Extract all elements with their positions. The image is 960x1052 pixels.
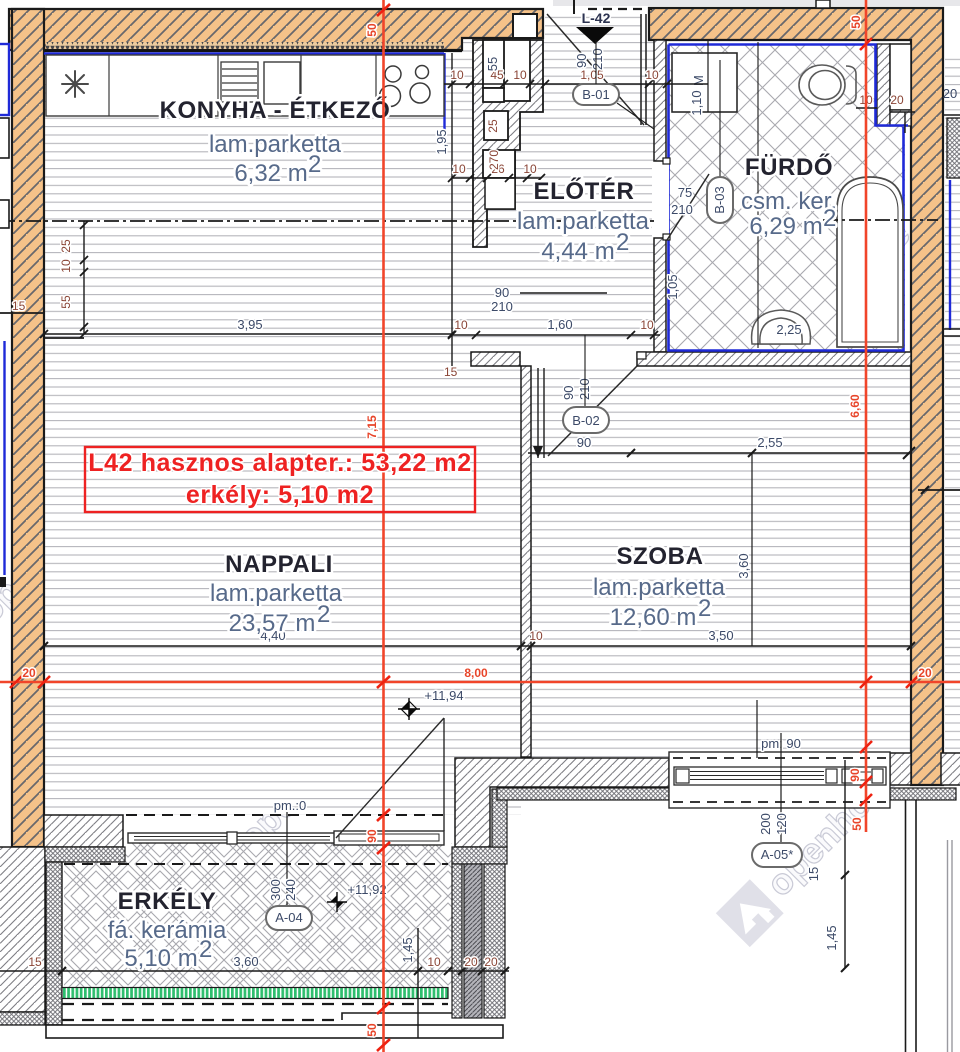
svg-text:10: 10 — [645, 68, 659, 82]
svg-text:NAPPALI: NAPPALI — [225, 551, 333, 578]
svg-text:L-42: L-42 — [582, 10, 611, 26]
svg-text:15: 15 — [12, 299, 26, 313]
svg-text:90: 90 — [848, 768, 862, 782]
svg-text:25: 25 — [486, 119, 500, 133]
svg-text:15: 15 — [28, 955, 42, 969]
svg-text:3,60: 3,60 — [233, 954, 258, 969]
svg-text:240: 240 — [283, 879, 298, 901]
svg-text:KONYHA - ÉTKEZŐ: KONYHA - ÉTKEZŐ — [160, 96, 391, 124]
svg-text:B-01: B-01 — [582, 87, 609, 102]
svg-text:A-04: A-04 — [275, 910, 302, 925]
svg-text:270: 270 — [487, 150, 501, 170]
svg-text:90: 90 — [365, 829, 379, 843]
svg-text:50: 50 — [849, 15, 863, 29]
svg-text:15: 15 — [806, 867, 821, 881]
svg-text:10: 10 — [640, 318, 654, 332]
svg-text:120: 120 — [774, 813, 789, 835]
svg-text:2: 2 — [823, 205, 836, 232]
svg-text:+11,94: +11,94 — [424, 688, 463, 703]
svg-text:55: 55 — [59, 295, 73, 309]
svg-text:1,95: 1,95 — [434, 129, 449, 154]
svg-text:1,45: 1,45 — [824, 925, 839, 950]
svg-text:4,44 m: 4,44 m — [541, 238, 614, 265]
svg-text:erkély: 5,10 m2: erkély: 5,10 m2 — [186, 481, 374, 509]
svg-text:L42 hasznos alapter.: 53,22 m2: L42 hasznos alapter.: 53,22 m2 — [88, 449, 471, 477]
svg-text:8,00: 8,00 — [464, 666, 488, 680]
svg-text:1,60: 1,60 — [547, 317, 572, 332]
svg-text:10: 10 — [452, 162, 466, 176]
svg-text:200: 200 — [758, 813, 773, 835]
svg-text:2: 2 — [317, 601, 330, 628]
svg-text:2: 2 — [698, 595, 711, 622]
svg-text:20: 20 — [943, 86, 957, 101]
svg-text:A-05*: A-05* — [761, 847, 794, 862]
svg-text:1,10: 1,10 — [689, 90, 704, 115]
svg-text:50: 50 — [850, 817, 864, 831]
svg-text:210: 210 — [491, 299, 513, 314]
svg-text:2: 2 — [308, 151, 321, 178]
svg-text:6,29 m: 6,29 m — [749, 213, 822, 240]
svg-text:10: 10 — [529, 629, 543, 643]
svg-text:B-03: B-03 — [712, 186, 727, 213]
svg-text:+11,92: +11,92 — [347, 882, 386, 897]
svg-text:6,32 m: 6,32 m — [234, 160, 307, 187]
svg-text:3,50: 3,50 — [708, 628, 733, 643]
svg-text:300: 300 — [268, 879, 283, 901]
svg-text:B-02: B-02 — [572, 413, 599, 428]
svg-text:FÜRDŐ: FÜRDŐ — [745, 153, 833, 181]
svg-text:50: 50 — [365, 1023, 379, 1037]
svg-text:90: 90 — [574, 54, 589, 68]
svg-text:2: 2 — [199, 936, 212, 963]
svg-text:75: 75 — [678, 185, 692, 200]
svg-text:210: 210 — [590, 48, 605, 70]
svg-text:6,60: 6,60 — [848, 394, 862, 418]
svg-text:20: 20 — [464, 955, 478, 969]
svg-text:10: 10 — [513, 68, 527, 82]
svg-text:90: 90 — [577, 435, 591, 450]
svg-text:7,15: 7,15 — [365, 415, 379, 439]
svg-text:55: 55 — [485, 57, 500, 71]
svg-text:5,10 m: 5,10 m — [124, 945, 197, 972]
svg-text:ERKÉLY: ERKÉLY — [118, 887, 217, 915]
svg-text:20: 20 — [484, 955, 498, 969]
svg-text:10: 10 — [59, 259, 73, 273]
svg-text:2,55: 2,55 — [757, 435, 782, 450]
svg-text:25: 25 — [59, 239, 73, 253]
svg-text:20: 20 — [890, 93, 904, 107]
svg-text:lam.parketta: lam.parketta — [209, 131, 342, 158]
svg-text:1,45: 1,45 — [400, 937, 415, 962]
svg-text:ELŐTÉR: ELŐTÉR — [534, 177, 635, 205]
svg-text:20: 20 — [22, 666, 36, 680]
svg-text:2,25: 2,25 — [776, 322, 801, 337]
svg-text:2: 2 — [616, 229, 629, 256]
svg-text:3,60: 3,60 — [736, 553, 751, 578]
svg-text:50: 50 — [365, 23, 379, 37]
svg-text:1,05: 1,05 — [665, 274, 680, 299]
svg-text:SZOBA: SZOBA — [617, 543, 704, 570]
svg-text:10: 10 — [454, 318, 468, 332]
svg-text:pm.:0: pm.:0 — [274, 798, 307, 813]
svg-text:90: 90 — [495, 285, 509, 300]
svg-text:15: 15 — [444, 365, 458, 379]
svg-text:10: 10 — [523, 162, 537, 176]
svg-text:210: 210 — [671, 202, 693, 217]
svg-text:23,57 m: 23,57 m — [229, 610, 316, 637]
svg-text:lam.parketta: lam.parketta — [517, 208, 650, 235]
svg-text:90: 90 — [561, 386, 576, 400]
svg-text:10: 10 — [450, 68, 464, 82]
svg-text:3,95: 3,95 — [237, 317, 262, 332]
svg-text:20: 20 — [918, 666, 932, 680]
svg-text:10: 10 — [427, 955, 441, 969]
svg-text:12,60 m: 12,60 m — [610, 604, 697, 631]
